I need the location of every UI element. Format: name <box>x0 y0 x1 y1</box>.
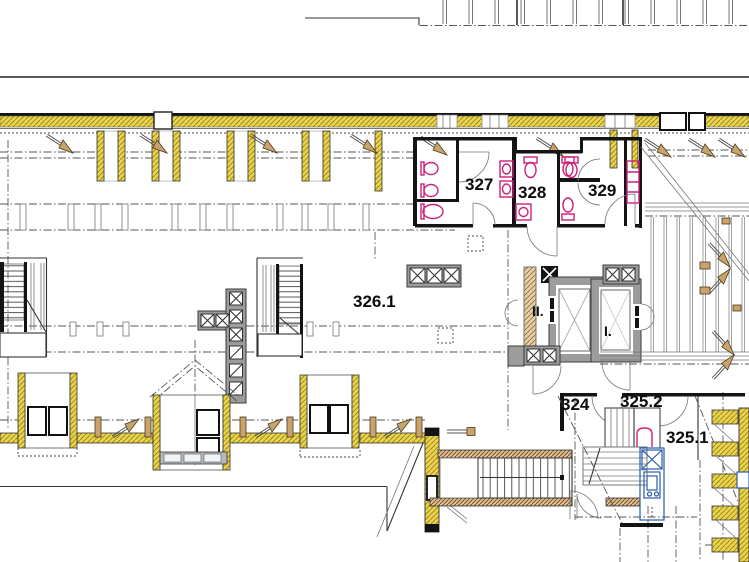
elevator-label-I: I. <box>604 324 612 338</box>
right-edge-wall <box>712 408 749 562</box>
door-arc <box>459 152 635 256</box>
elevator-shaft-I <box>591 279 642 362</box>
north-dormer-pillars <box>97 130 638 191</box>
floor-plan-canvas: 327 328 329 326.1 324 325.2 325.1 II. I. <box>0 0 749 562</box>
room-label-325-1: 325.1 <box>666 429 709 446</box>
room-label-327: 327 <box>465 176 493 193</box>
room-label-324: 324 <box>561 396 589 413</box>
room-label-329: 329 <box>588 182 616 199</box>
floor-plan-drawing <box>0 0 749 562</box>
urinal-icon <box>500 161 513 197</box>
knee-wall-posts <box>20 204 369 336</box>
upper-roof-structure <box>305 0 749 26</box>
room-label-328: 328 <box>518 184 546 201</box>
corridor-vent-boxes <box>407 265 461 287</box>
elevator-core <box>505 265 654 394</box>
room-label-326-1: 326.1 <box>353 293 396 310</box>
room-label-325-2: 325.2 <box>620 393 663 410</box>
dormer-window <box>153 395 230 470</box>
stairs-right <box>257 258 303 358</box>
duct-shaft-column <box>198 289 246 403</box>
column-markers <box>438 236 483 343</box>
dormer-window <box>300 375 360 457</box>
elevator-label-II: II. <box>532 304 544 318</box>
dormer-window <box>18 373 77 448</box>
closet-325-2 <box>605 408 660 448</box>
south-wall-left-wing <box>0 373 425 470</box>
window-icon <box>737 472 749 488</box>
stairs-324 <box>583 447 647 485</box>
